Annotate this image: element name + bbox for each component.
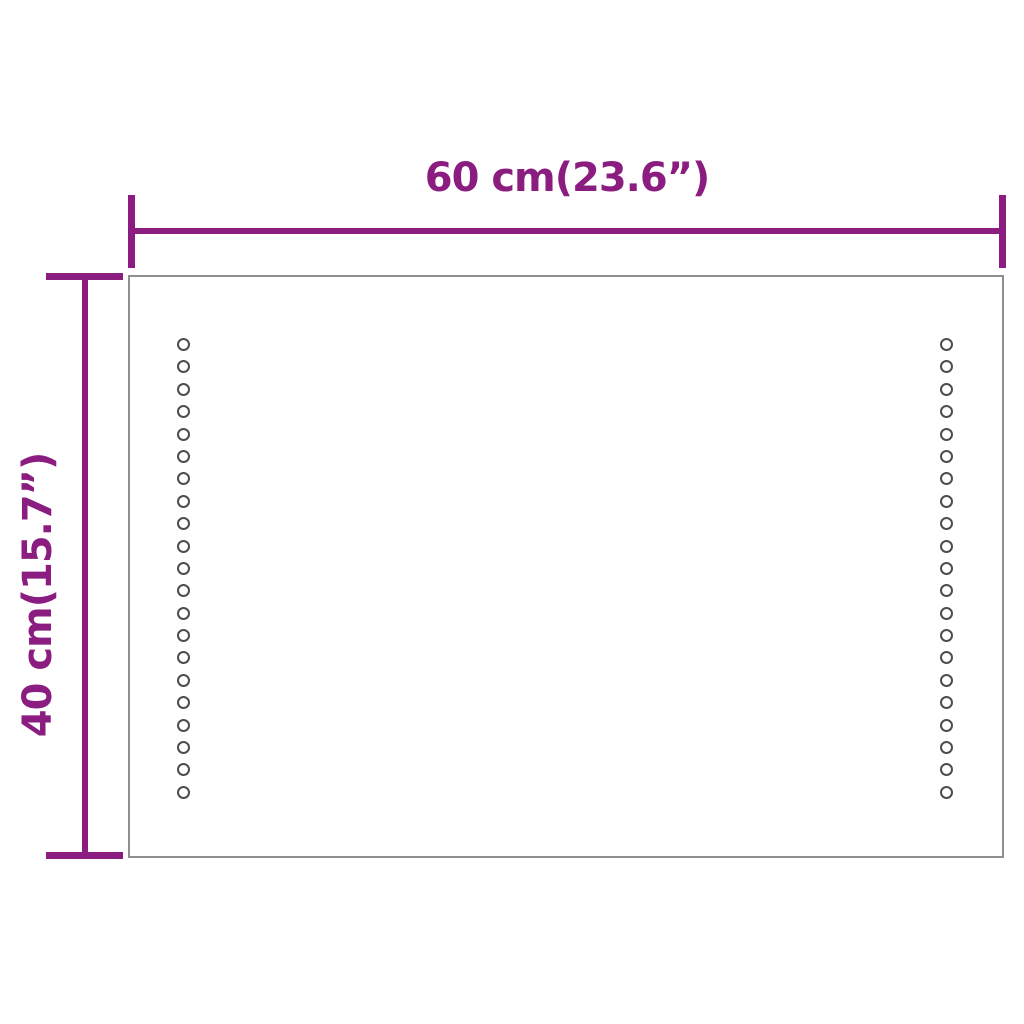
led-dot (177, 450, 190, 463)
led-dot (177, 517, 190, 530)
led-dot (177, 584, 190, 597)
led-dot-column-left (177, 338, 190, 799)
height-dimension-cap-bottom (46, 852, 123, 859)
led-dot (177, 428, 190, 441)
led-dot (940, 763, 953, 776)
led-dot (940, 696, 953, 709)
dimension-diagram: 60 cm(23.6”) 40 cm(15.7”) (0, 0, 1024, 1024)
led-dot (940, 450, 953, 463)
led-dot (177, 719, 190, 732)
led-dot (940, 786, 953, 799)
led-dot (940, 674, 953, 687)
led-dot (940, 472, 953, 485)
led-dot (940, 584, 953, 597)
width-dimension-cap-right (999, 195, 1006, 268)
mirror-panel-outline (128, 275, 1004, 858)
led-dot (177, 562, 190, 575)
led-dot (940, 383, 953, 396)
led-dot (940, 428, 953, 441)
led-dot (940, 719, 953, 732)
led-dot (177, 495, 190, 508)
led-dot (177, 763, 190, 776)
led-dot (177, 629, 190, 642)
led-dot (940, 517, 953, 530)
led-dot (177, 741, 190, 754)
led-dot (177, 786, 190, 799)
led-dot (177, 405, 190, 418)
height-dimension-line (82, 277, 88, 856)
led-dot (940, 405, 953, 418)
width-dimension-label: 60 cm(23.6”) (425, 155, 710, 201)
led-dot (940, 741, 953, 754)
led-dot (940, 360, 953, 373)
led-dot (177, 696, 190, 709)
led-dot (940, 540, 953, 553)
led-dot (940, 607, 953, 620)
height-dimension-label: 40 cm(15.7”) (15, 453, 61, 738)
led-dot-column-right (940, 338, 953, 799)
led-dot (177, 651, 190, 664)
led-dot (177, 472, 190, 485)
led-dot (940, 338, 953, 351)
led-dot (940, 629, 953, 642)
led-dot (177, 338, 190, 351)
led-dot (177, 540, 190, 553)
led-dot (940, 651, 953, 664)
led-dot (940, 562, 953, 575)
width-dimension-line (131, 228, 1003, 234)
led-dot (177, 674, 190, 687)
led-dot (177, 607, 190, 620)
led-dot (177, 383, 190, 396)
led-dot (940, 495, 953, 508)
led-dot (177, 360, 190, 373)
